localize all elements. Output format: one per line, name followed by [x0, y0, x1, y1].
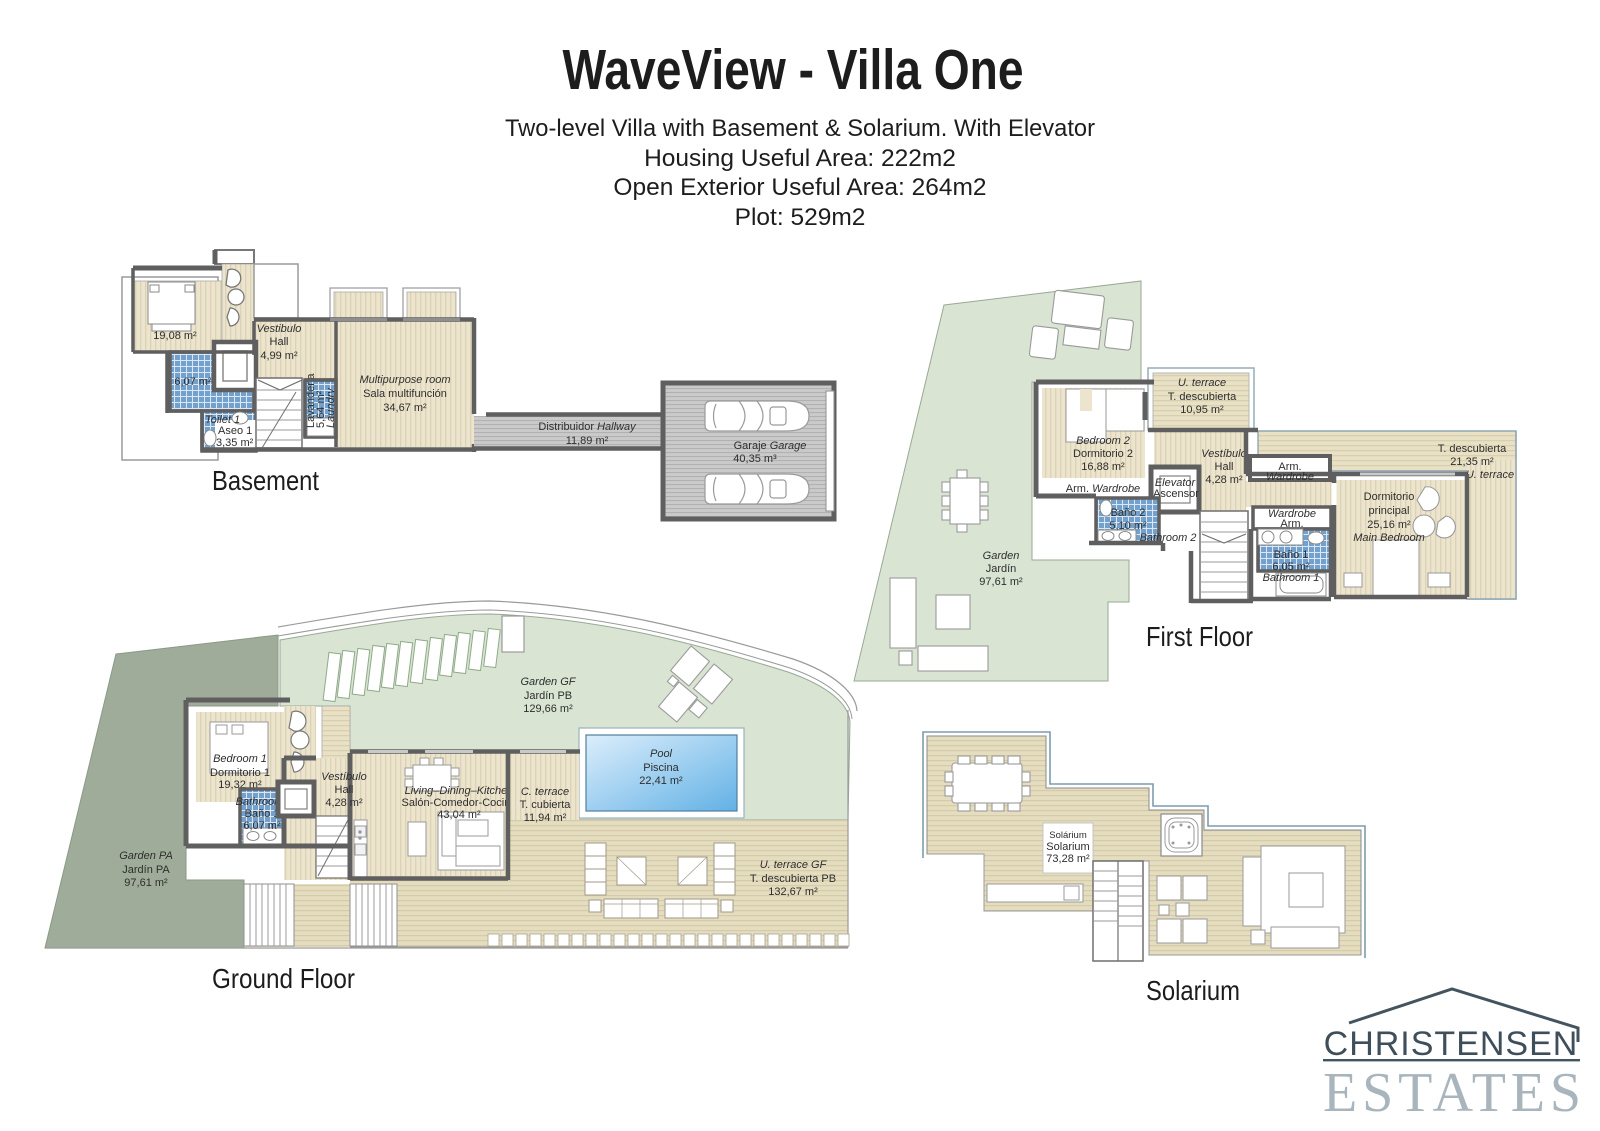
svg-text:Solarium: Solarium	[1046, 841, 1089, 853]
svg-text:Solárium: Solárium	[1049, 830, 1087, 841]
svg-text:40,35 m³: 40,35 m³	[733, 453, 777, 465]
svg-text:U. terrace GF: U. terrace GF	[760, 859, 828, 871]
svg-text:Sala multifunción: Sala multifunción	[363, 388, 447, 400]
svg-text:4,28 m²: 4,28 m²	[325, 797, 363, 809]
svg-text:Main Bedroom: Main Bedroom	[1353, 532, 1425, 544]
svg-text:Two-level Villa with Basement: Two-level Villa with Basement & Solarium…	[505, 115, 1095, 142]
svg-text:Bedroom 2: Bedroom 2	[1076, 435, 1130, 447]
svg-text:First Floor: First Floor	[1146, 621, 1253, 652]
svg-text:22,41 m²: 22,41 m²	[639, 775, 683, 787]
svg-text:Open Exterior Useful Area: 264: Open Exterior Useful Area: 264m2	[613, 174, 986, 201]
svg-text:U. terrace: U. terrace	[1466, 469, 1514, 481]
svg-text:21,35 m²: 21,35 m²	[1450, 456, 1494, 468]
svg-text:4,28 m²: 4,28 m²	[1205, 474, 1243, 486]
svg-text:11,89 m²: 11,89 m²	[566, 435, 609, 447]
svg-text:19,08 m²: 19,08 m²	[153, 330, 197, 342]
svg-text:Garden PA: Garden PA	[119, 850, 173, 862]
svg-text:Jardín PB: Jardín PB	[524, 690, 572, 702]
svg-text:Baño 2: Baño 2	[1111, 507, 1146, 519]
svg-text:6,07 m²: 6,07 m²	[243, 820, 281, 832]
svg-text:Basement: Basement	[212, 465, 319, 496]
svg-text:T. descubierta: T. descubierta	[1168, 391, 1237, 403]
svg-text:Hall: Hall	[1215, 461, 1234, 473]
svg-text:Housing Useful Area: 222m2: Housing Useful Area: 222m2	[644, 145, 956, 172]
svg-text:Salón-Comedor-Cocina: Salón-Comedor-Cocina	[402, 797, 518, 809]
svg-text:97,61 m²: 97,61 m²	[124, 877, 168, 889]
svg-text:Jardín PA: Jardín PA	[122, 864, 170, 876]
svg-text:43,04 m²: 43,04 m²	[437, 809, 481, 821]
svg-text:Garden GF: Garden GF	[520, 676, 576, 688]
svg-text:Vestíbulo: Vestíbulo	[321, 771, 366, 783]
svg-text:Bathroom 1: Bathroom 1	[1263, 572, 1320, 584]
svg-text:132,67 m²: 132,67 m²	[768, 886, 818, 898]
svg-text:5,10 m²: 5,10 m²	[1109, 520, 1147, 532]
svg-text:Garden: Garden	[983, 550, 1020, 562]
svg-text:3,35 m²: 3,35 m²	[216, 437, 254, 449]
svg-text:4,99 m²: 4,99 m²	[260, 350, 298, 362]
svg-text:Solarium: Solarium	[1146, 975, 1240, 1006]
svg-text:11,94 m²: 11,94 m²	[524, 812, 567, 824]
svg-text:Dormitorio 2: Dormitorio 2	[1073, 448, 1133, 460]
svg-text:Baño 1: Baño 1	[245, 808, 280, 820]
svg-text:Baño 1: Baño 1	[1274, 549, 1309, 561]
svg-text:Hall: Hall	[335, 784, 354, 796]
svg-text:Wardrobe: Wardrobe	[1266, 471, 1314, 483]
svg-text:ESTATES: ESTATES	[1323, 1062, 1581, 1124]
svg-text:U. terrace: U. terrace	[1178, 377, 1226, 389]
svg-text:Living–Dining–Kitchen: Living–Dining–Kitchen	[405, 785, 514, 797]
svg-text:Piscina: Piscina	[643, 762, 679, 774]
svg-text:Aseo 1: Aseo 1	[218, 425, 252, 437]
svg-text:T. cubierta: T. cubierta	[520, 799, 572, 811]
svg-text:Hall: Hall	[270, 336, 289, 348]
svg-text:C. terrace: C. terrace	[521, 786, 569, 798]
svg-text:25,16 m²: 25,16 m²	[1367, 519, 1411, 531]
svg-text:Garaje Garage: Garaje Garage	[734, 440, 807, 452]
svg-text:97,61 m²: 97,61 m²	[979, 576, 1023, 588]
svg-text:Jardín: Jardín	[986, 563, 1017, 575]
svg-text:T. descubierta: T. descubierta	[1438, 443, 1507, 455]
svg-text:WaveView - Villa One: WaveView - Villa One	[563, 38, 1024, 102]
svg-text:principal: principal	[1369, 505, 1410, 517]
svg-text:6,07 m²: 6,07 m²	[174, 376, 212, 388]
svg-text:Pool: Pool	[650, 748, 673, 760]
svg-text:Dormitorio 1: Dormitorio 1	[210, 767, 270, 779]
svg-text:129,66 m²: 129,66 m²	[523, 703, 573, 715]
svg-text:CHRISTENSEN: CHRISTENSEN	[1324, 1025, 1579, 1063]
svg-text:Vestibulo: Vestibulo	[257, 323, 302, 335]
svg-text:Plot: 529m2: Plot: 529m2	[735, 204, 866, 231]
svg-text:Vestíbulo: Vestíbulo	[1201, 448, 1246, 460]
svg-text:Distribuidor Hallway: Distribuidor Hallway	[538, 421, 637, 433]
svg-text:73,28 m²: 73,28 m²	[1046, 853, 1090, 865]
svg-text:T. descubierta PB: T. descubierta PB	[750, 873, 836, 885]
svg-text:10,95 m²: 10,95 m²	[1180, 404, 1224, 416]
svg-text:16,88 m²: 16,88 m²	[1081, 461, 1125, 473]
svg-text:34,67 m²: 34,67 m²	[383, 402, 427, 414]
svg-text:Bedroom 1: Bedroom 1	[213, 753, 267, 765]
svg-text:Multipurpose room: Multipurpose room	[359, 374, 450, 386]
svg-text:Arm. Wardrobe: Arm. Wardrobe	[1066, 483, 1140, 495]
svg-text:Dormitorio: Dormitorio	[1364, 491, 1415, 503]
svg-text:Ground Floor: Ground Floor	[212, 963, 355, 994]
